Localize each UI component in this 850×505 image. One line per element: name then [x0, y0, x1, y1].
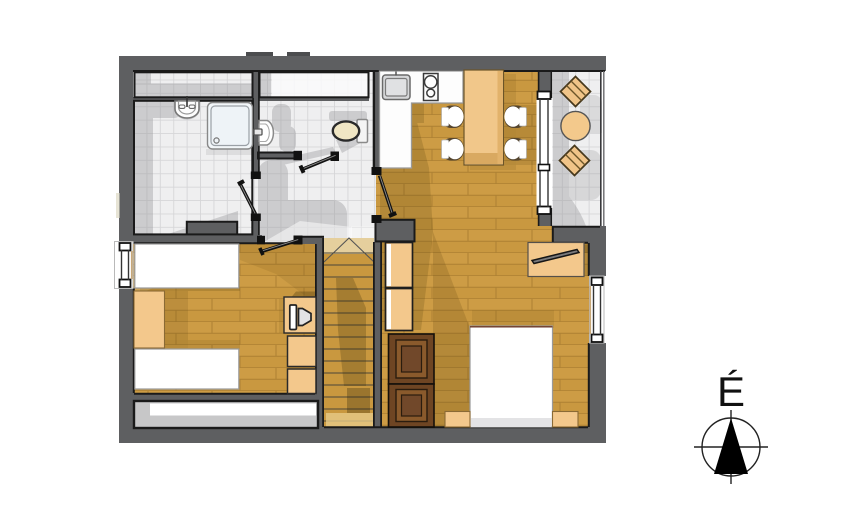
svg-text:É: É — [717, 368, 745, 415]
